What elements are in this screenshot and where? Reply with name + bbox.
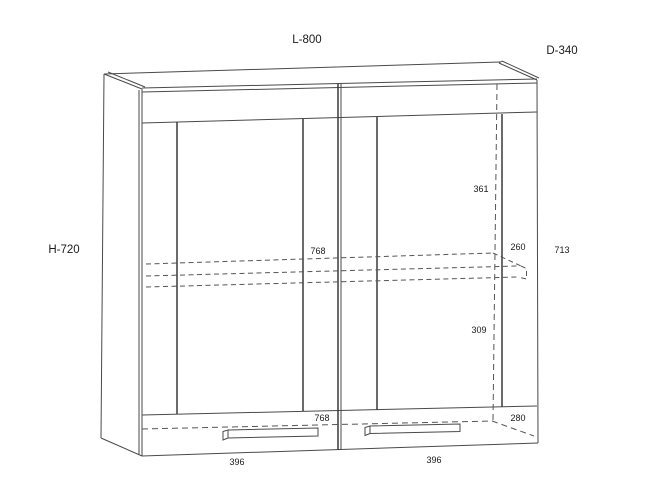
left-door-handle xyxy=(228,428,318,438)
bottom-right-diagonal-hidden xyxy=(492,421,534,436)
top-right-edge-thickness xyxy=(502,61,539,78)
dim-shelf-right-depth: 260 xyxy=(510,242,525,252)
left-back-edge xyxy=(101,74,104,438)
cabinet-front-face xyxy=(142,80,538,456)
dim-top-to-shelf: 361 xyxy=(473,184,488,194)
dim-left-door-width: 396 xyxy=(229,457,244,467)
cabinet-technical-drawing: L-800 D-340 H-720 361 768 260 713 309 76… xyxy=(0,0,648,486)
dim-right-door-width: 396 xyxy=(426,455,441,465)
top-back-edge xyxy=(104,62,500,74)
dim-depth-label: D-340 xyxy=(546,45,577,57)
dim-bottom-width: 768 xyxy=(314,413,329,423)
shelf-right-end-hidden xyxy=(518,266,527,279)
back-right-edge-hidden-line xyxy=(493,84,497,420)
cabinet-left-side xyxy=(101,74,142,456)
front-right-edge xyxy=(537,80,538,443)
dim-shelf-width: 768 xyxy=(310,246,325,256)
dimension-labels: L-800 D-340 H-720 361 768 260 713 309 76… xyxy=(48,34,577,467)
top-front-edge-thickness xyxy=(142,83,537,92)
top-left-edge-thickness xyxy=(108,72,145,87)
door-frame-top-rail-line xyxy=(142,112,537,123)
hidden-shelf xyxy=(146,253,527,287)
left-bottom-edge xyxy=(101,438,142,456)
right-door-handle xyxy=(370,424,460,434)
dim-shelf-to-bottom: 309 xyxy=(471,325,486,335)
dim-height-label: H-720 xyxy=(48,244,79,256)
dim-bottom-depth: 280 xyxy=(510,413,525,423)
cabinet-top-face xyxy=(104,61,539,92)
door-frame-bottom-rail-line xyxy=(142,406,537,415)
left-door-handle-endcap xyxy=(223,430,228,440)
drawing-canvas: L-800 D-340 H-720 361 768 260 713 309 76… xyxy=(0,0,648,486)
shelf-front-top-edge-hidden xyxy=(146,266,518,276)
top-left-edge xyxy=(104,74,142,89)
shelf-front-bottom-edge-hidden xyxy=(146,277,518,287)
hidden-back-edge xyxy=(493,84,497,420)
dim-interior-height: 713 xyxy=(554,245,569,255)
left-door xyxy=(177,119,318,440)
dim-width-label: L-800 xyxy=(292,34,321,46)
door-gap xyxy=(338,84,341,450)
right-door xyxy=(365,114,502,436)
right-door-handle-endcap xyxy=(365,426,370,436)
front-bottom-edge xyxy=(142,443,538,456)
top-front-edge xyxy=(142,79,537,88)
top-right-edge xyxy=(499,63,537,80)
shelf-right-back-diagonal-hidden xyxy=(493,253,521,266)
